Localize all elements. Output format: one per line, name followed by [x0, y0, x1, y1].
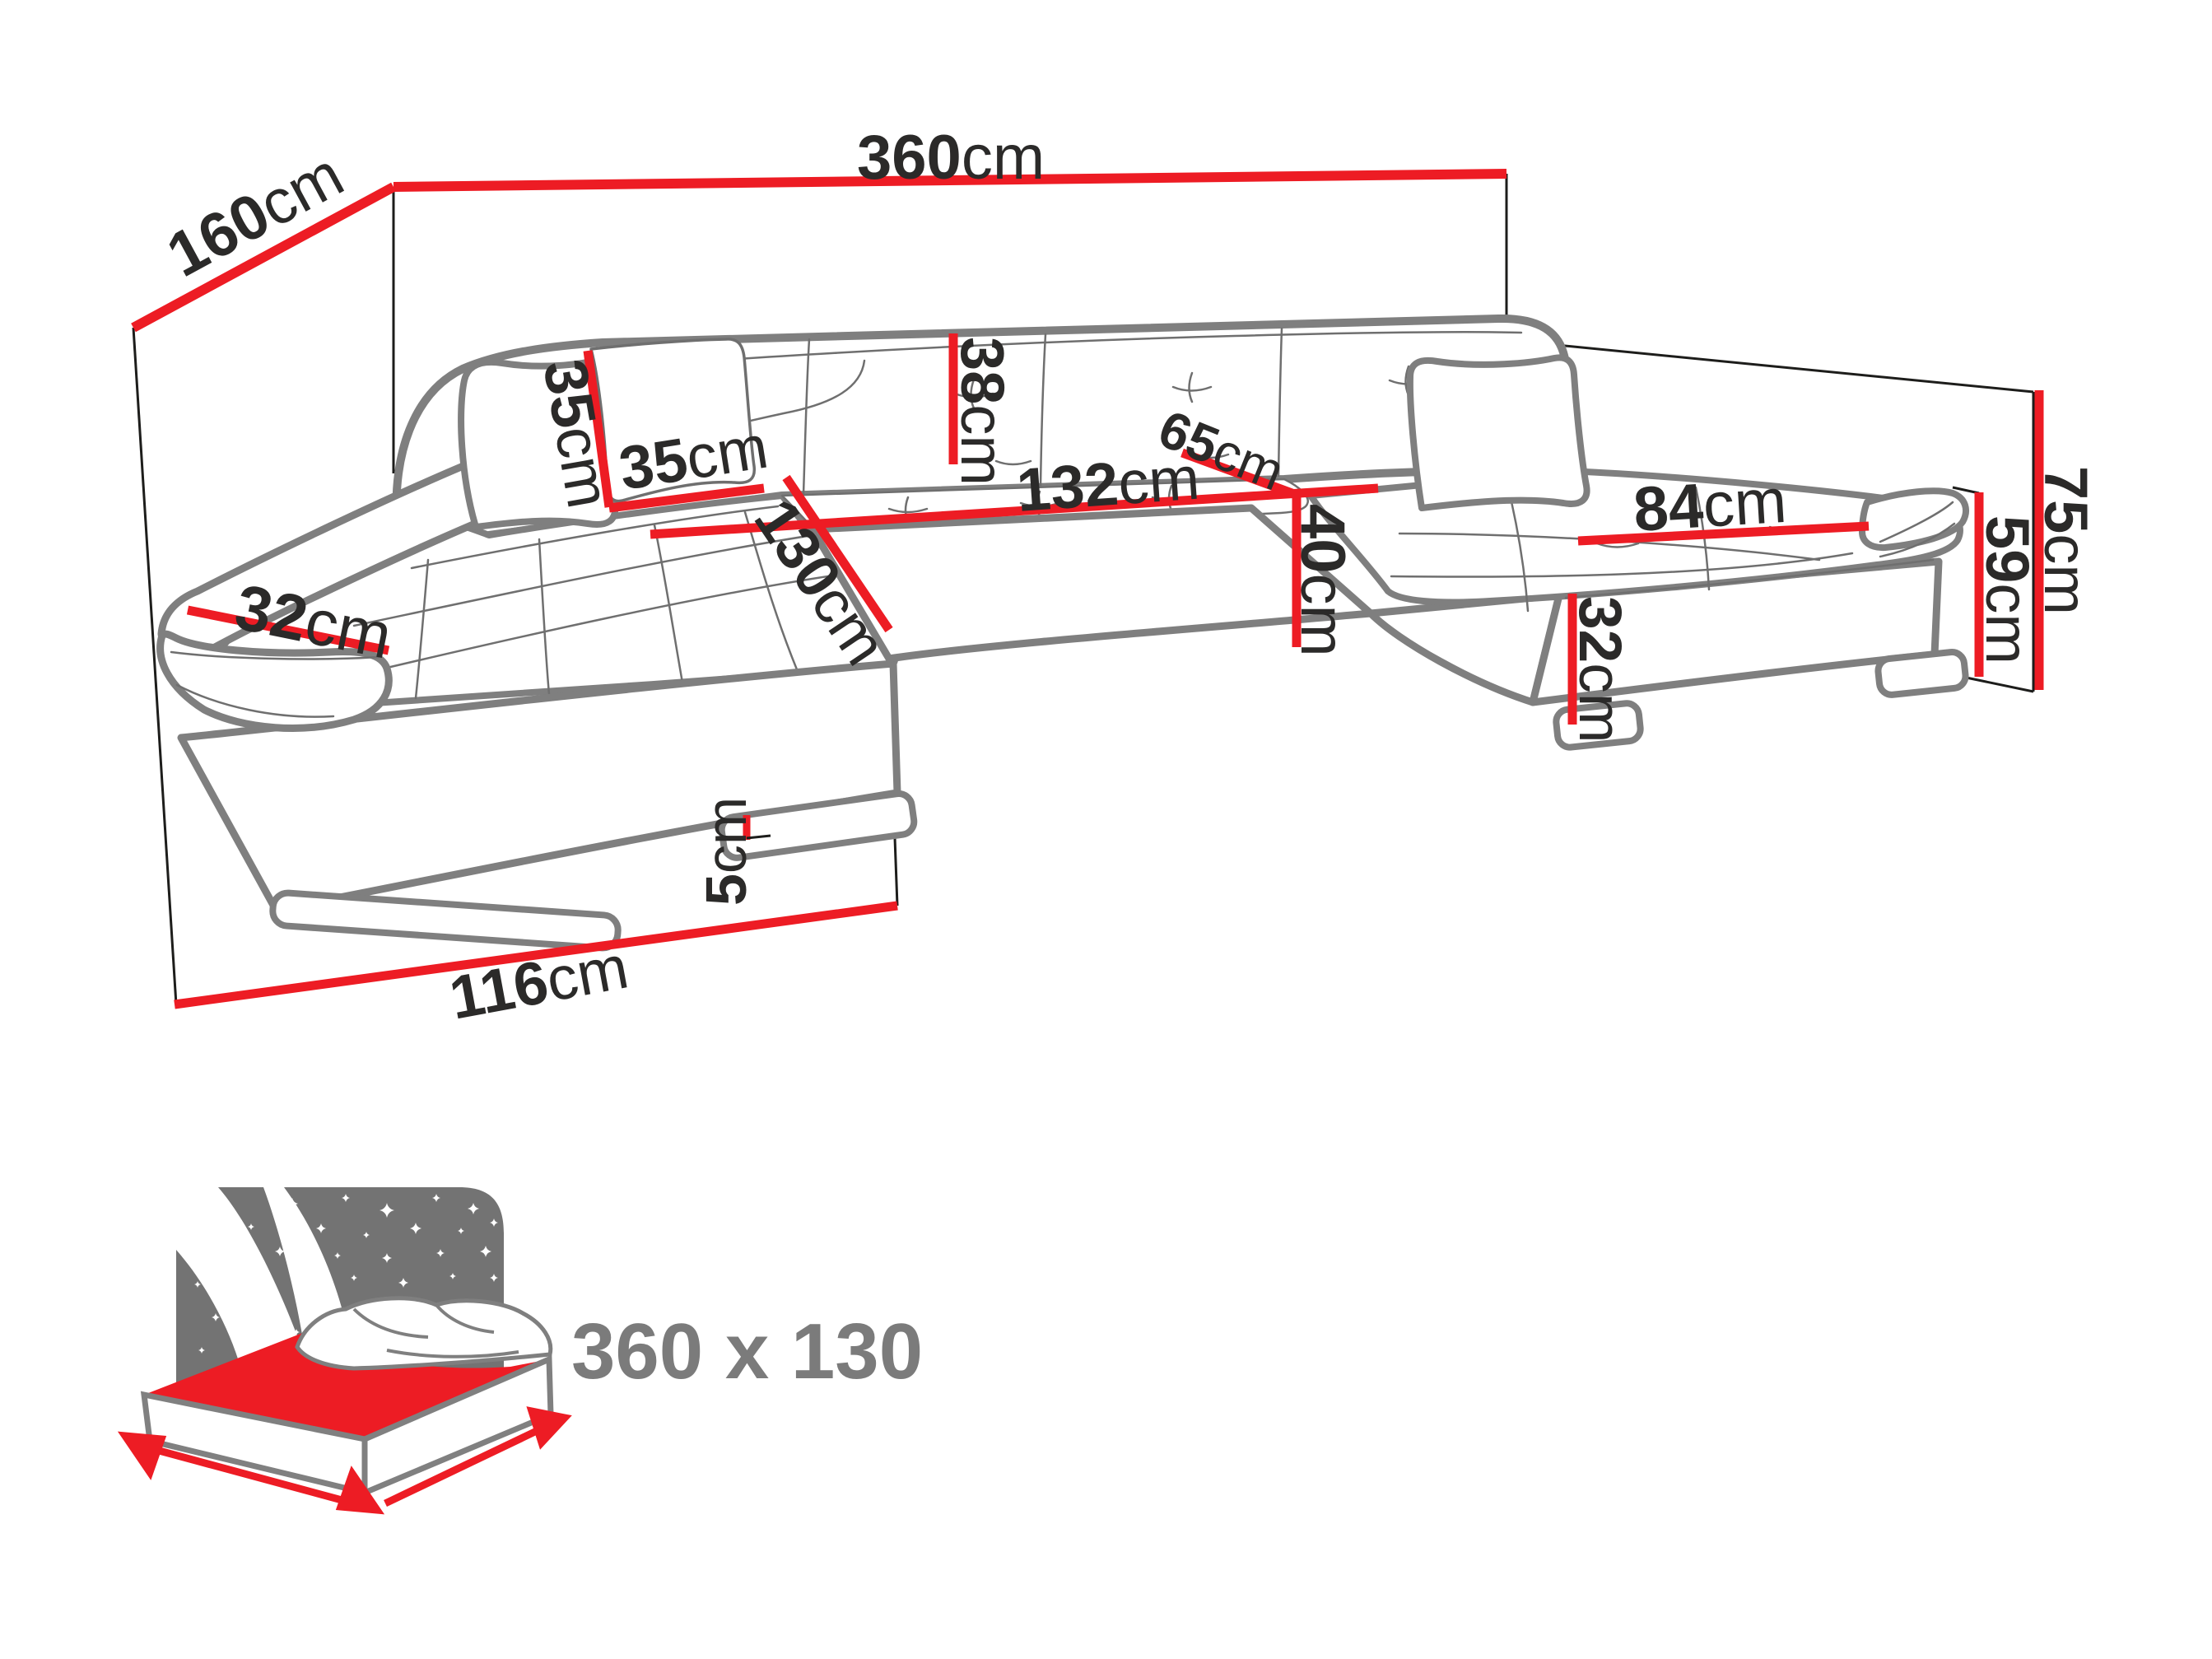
- svg-text:360 x 130: 360 x 130: [571, 1307, 923, 1396]
- svg-text:5cm: 5cm: [694, 797, 758, 906]
- svg-text:59cm: 59cm: [1973, 515, 2042, 664]
- svg-text:360cm: 360cm: [857, 123, 1045, 193]
- svg-text:32cm: 32cm: [1567, 596, 1633, 743]
- svg-text:40cm: 40cm: [1288, 504, 1357, 657]
- svg-text:84cm: 84cm: [1632, 466, 1789, 545]
- svg-text:38cm: 38cm: [948, 337, 1017, 486]
